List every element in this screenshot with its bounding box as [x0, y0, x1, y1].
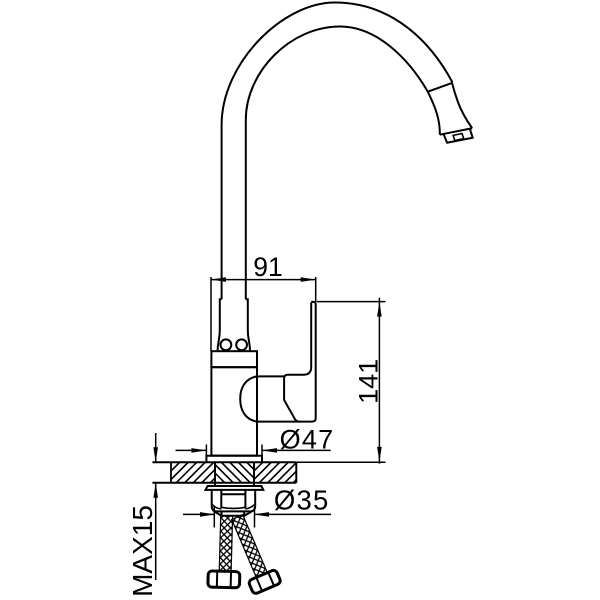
svg-text:141: 141: [354, 359, 384, 404]
svg-text:Ø35: Ø35: [274, 484, 330, 515]
svg-text:MAX15: MAX15: [127, 505, 158, 597]
svg-text:Ø47: Ø47: [280, 424, 335, 454]
svg-text:91: 91: [253, 252, 282, 282]
